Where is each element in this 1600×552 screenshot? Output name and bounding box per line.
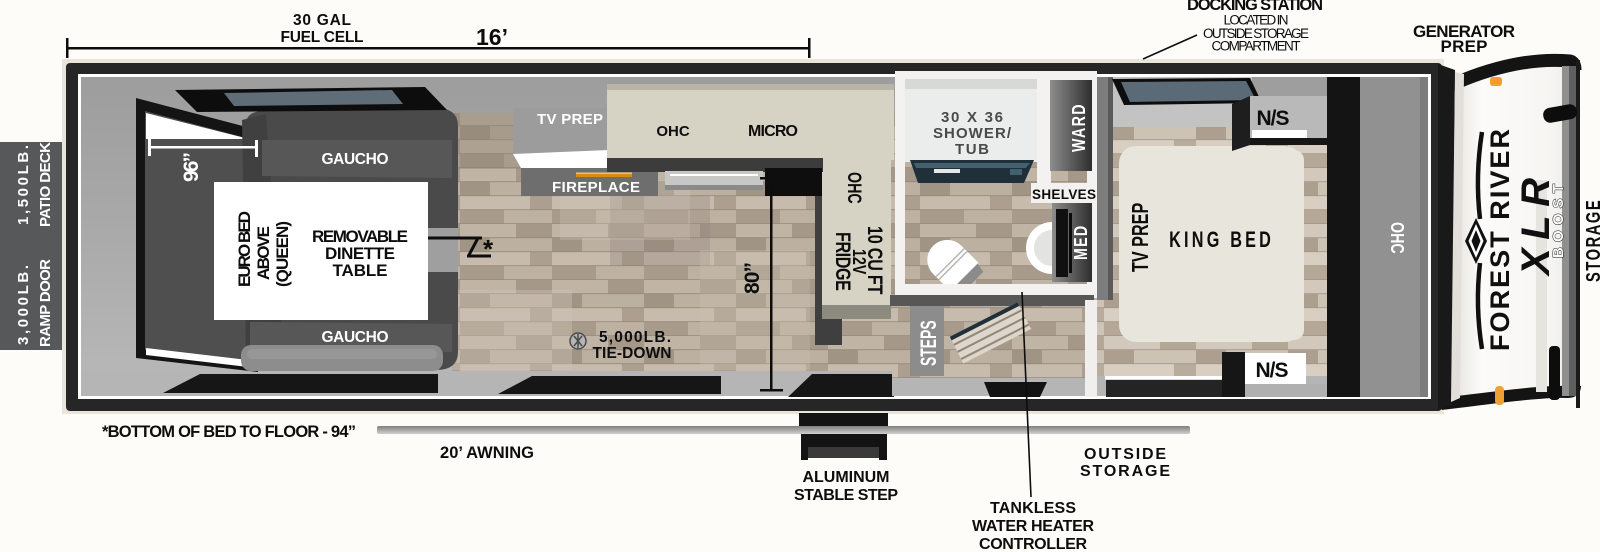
svg-text:CONTROLLER: CONTROLLER — [979, 536, 1087, 552]
svg-text:STEPS: STEPS — [916, 320, 941, 366]
svg-text:OHC: OHC — [843, 172, 865, 204]
svg-text:5,000LB.: 5,000LB. — [599, 329, 671, 346]
svg-text:80”: 80” — [741, 262, 764, 294]
svg-text:MICRO: MICRO — [748, 123, 798, 140]
svg-text:FUEL CELL: FUEL CELL — [281, 29, 364, 46]
svg-text:ALUMINUM: ALUMINUM — [803, 469, 890, 486]
svg-text:SHELVES: SHELVES — [1032, 187, 1096, 202]
svg-text:*: * — [483, 234, 494, 264]
svg-text:STORAGE: STORAGE — [1582, 200, 1600, 282]
svg-text:*BOTTOM OF BED TO FLOOR - 94”: *BOTTOM OF BED TO FLOOR - 94” — [102, 423, 356, 441]
svg-text:GAUCHO: GAUCHO — [322, 329, 389, 346]
svg-text:96”: 96” — [180, 152, 203, 182]
svg-text:FOREST RIVER: FOREST RIVER — [1485, 129, 1515, 351]
svg-text:MED: MED — [1070, 226, 1091, 260]
svg-text:STABLE STEP: STABLE STEP — [794, 487, 898, 504]
svg-text:BOOST: BOOST — [1550, 182, 1567, 258]
svg-text:(QUEEN): (QUEEN) — [273, 221, 292, 287]
svg-text:TUB: TUB — [955, 141, 989, 158]
svg-text:TIE-DOWN: TIE-DOWN — [593, 345, 672, 362]
svg-text:ABOVE: ABOVE — [254, 226, 273, 280]
svg-text:16’: 16’ — [476, 24, 508, 50]
svg-text:RAMP DOOR: RAMP DOOR — [37, 259, 54, 347]
svg-text:TV PREP: TV PREP — [1128, 203, 1154, 272]
svg-text:30 GAL: 30 GAL — [293, 12, 351, 29]
svg-text:PREP: PREP — [1441, 37, 1488, 56]
svg-text:EURO BED: EURO BED — [235, 211, 254, 287]
svg-text:TABLE: TABLE — [333, 261, 388, 280]
svg-text:OHC: OHC — [656, 123, 690, 140]
svg-text:GAUCHO: GAUCHO — [322, 151, 389, 168]
svg-text:OHC: OHC — [1386, 222, 1407, 254]
svg-text:TV PREP: TV PREP — [537, 111, 603, 128]
svg-text:STORAGE: STORAGE — [1080, 463, 1170, 480]
svg-text:20’ AWNING: 20’ AWNING — [440, 444, 534, 462]
svg-text:FRIDGE: FRIDGE — [831, 232, 855, 291]
svg-text:FIREPLACE: FIREPLACE — [552, 179, 640, 196]
svg-text:30 X 36: 30 X 36 — [941, 109, 1003, 126]
svg-text:PATIO DECK: PATIO DECK — [37, 142, 54, 227]
svg-text:N/S: N/S — [1256, 359, 1289, 382]
svg-text:N/S: N/S — [1257, 107, 1290, 130]
svg-text:SHOWER/: SHOWER/ — [933, 125, 1012, 142]
svg-text:3,000LB.: 3,000LB. — [15, 265, 32, 345]
svg-text:WATER HEATER: WATER HEATER — [972, 518, 1094, 535]
svg-text:TANKLESS: TANKLESS — [990, 500, 1076, 517]
svg-text:WARD: WARD — [1068, 105, 1089, 153]
svg-text:COMPARTMENT: COMPARTMENT — [1212, 39, 1301, 54]
svg-text:1,500LB.: 1,500LB. — [15, 145, 32, 225]
